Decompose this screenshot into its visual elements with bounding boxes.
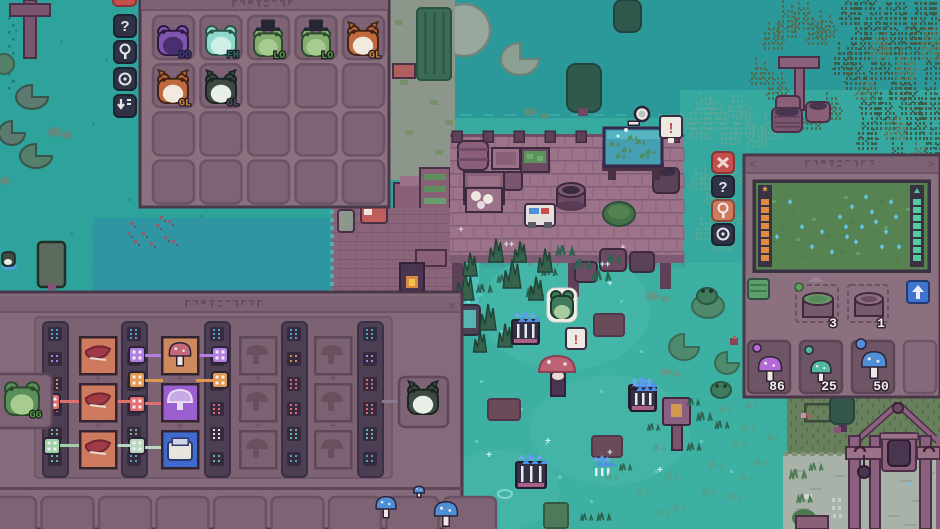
svg-text:+: +	[177, 421, 184, 433]
svg-text:1: 1	[877, 316, 885, 331]
svg-text:GG: GG	[30, 411, 42, 422]
svg-text:DD: DD	[179, 50, 191, 61]
svg-text:++: ++	[600, 260, 611, 270]
svg-text:25: 25	[821, 379, 837, 394]
svg-text:+: +	[95, 421, 102, 433]
svg-text:+: +	[458, 225, 463, 235]
svg-text:?: ?	[120, 18, 129, 35]
svg-text:+: +	[95, 374, 102, 386]
svg-text:?: ?	[718, 179, 727, 196]
svg-text:GL: GL	[179, 98, 191, 109]
svg-text:+: +	[557, 473, 562, 483]
svg-text:+: +	[255, 421, 262, 433]
svg-text:!: !	[572, 333, 580, 349]
svg-text:LO: LO	[321, 51, 333, 62]
svg-text:LO: LO	[273, 51, 285, 62]
svg-text:FH: FH	[227, 50, 239, 61]
svg-text:!: !	[666, 121, 675, 138]
svg-text:>: >	[928, 160, 935, 172]
svg-text:+: +	[486, 451, 492, 462]
svg-text:50: 50	[873, 379, 889, 394]
svg-text:+: +	[330, 374, 337, 386]
svg-text:+: +	[330, 421, 337, 433]
svg-text:<: <	[750, 160, 757, 172]
svg-text:+: +	[907, 480, 912, 490]
svg-text:3: 3	[829, 316, 837, 331]
svg-text:+: +	[657, 466, 663, 477]
svg-text:+: +	[607, 279, 612, 289]
svg-text:+: +	[255, 374, 262, 386]
svg-text:GL: GL	[227, 98, 239, 109]
svg-text:+: +	[545, 437, 551, 448]
svg-text:GL: GL	[369, 50, 381, 61]
svg-text:++: ++	[504, 240, 515, 250]
svg-text:+: +	[177, 374, 184, 386]
svg-text:86: 86	[769, 379, 785, 394]
svg-text:*: *	[761, 185, 769, 200]
svg-text:+: +	[607, 448, 612, 458]
